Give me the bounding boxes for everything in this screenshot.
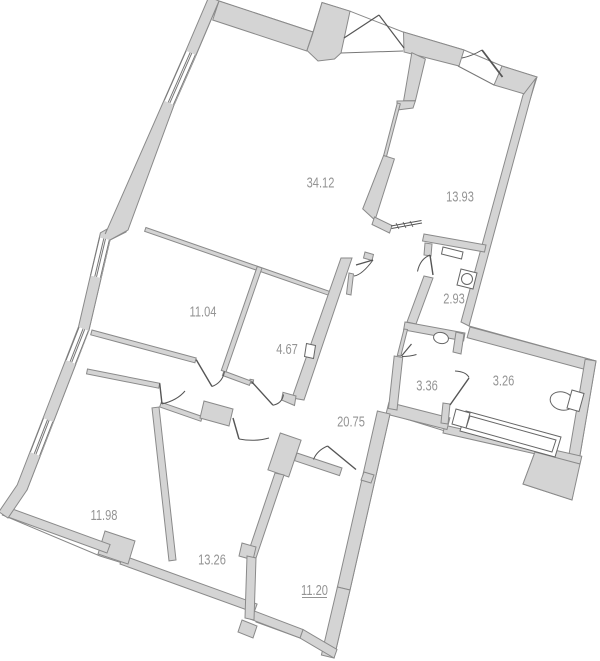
svg-text:11.20: 11.20 — [301, 581, 328, 598]
svg-text:2.93: 2.93 — [443, 290, 465, 307]
svg-text:34.12: 34.12 — [307, 174, 335, 191]
svg-text:3.26: 3.26 — [493, 372, 515, 389]
svg-text:20.75: 20.75 — [337, 413, 365, 430]
svg-text:11.98: 11.98 — [91, 506, 118, 523]
svg-text:3.36: 3.36 — [416, 377, 438, 394]
svg-text:4.67: 4.67 — [276, 340, 298, 357]
svg-text:11.04: 11.04 — [190, 303, 217, 320]
svg-text:13.26: 13.26 — [198, 551, 226, 568]
svg-text:13.93: 13.93 — [446, 188, 474, 205]
